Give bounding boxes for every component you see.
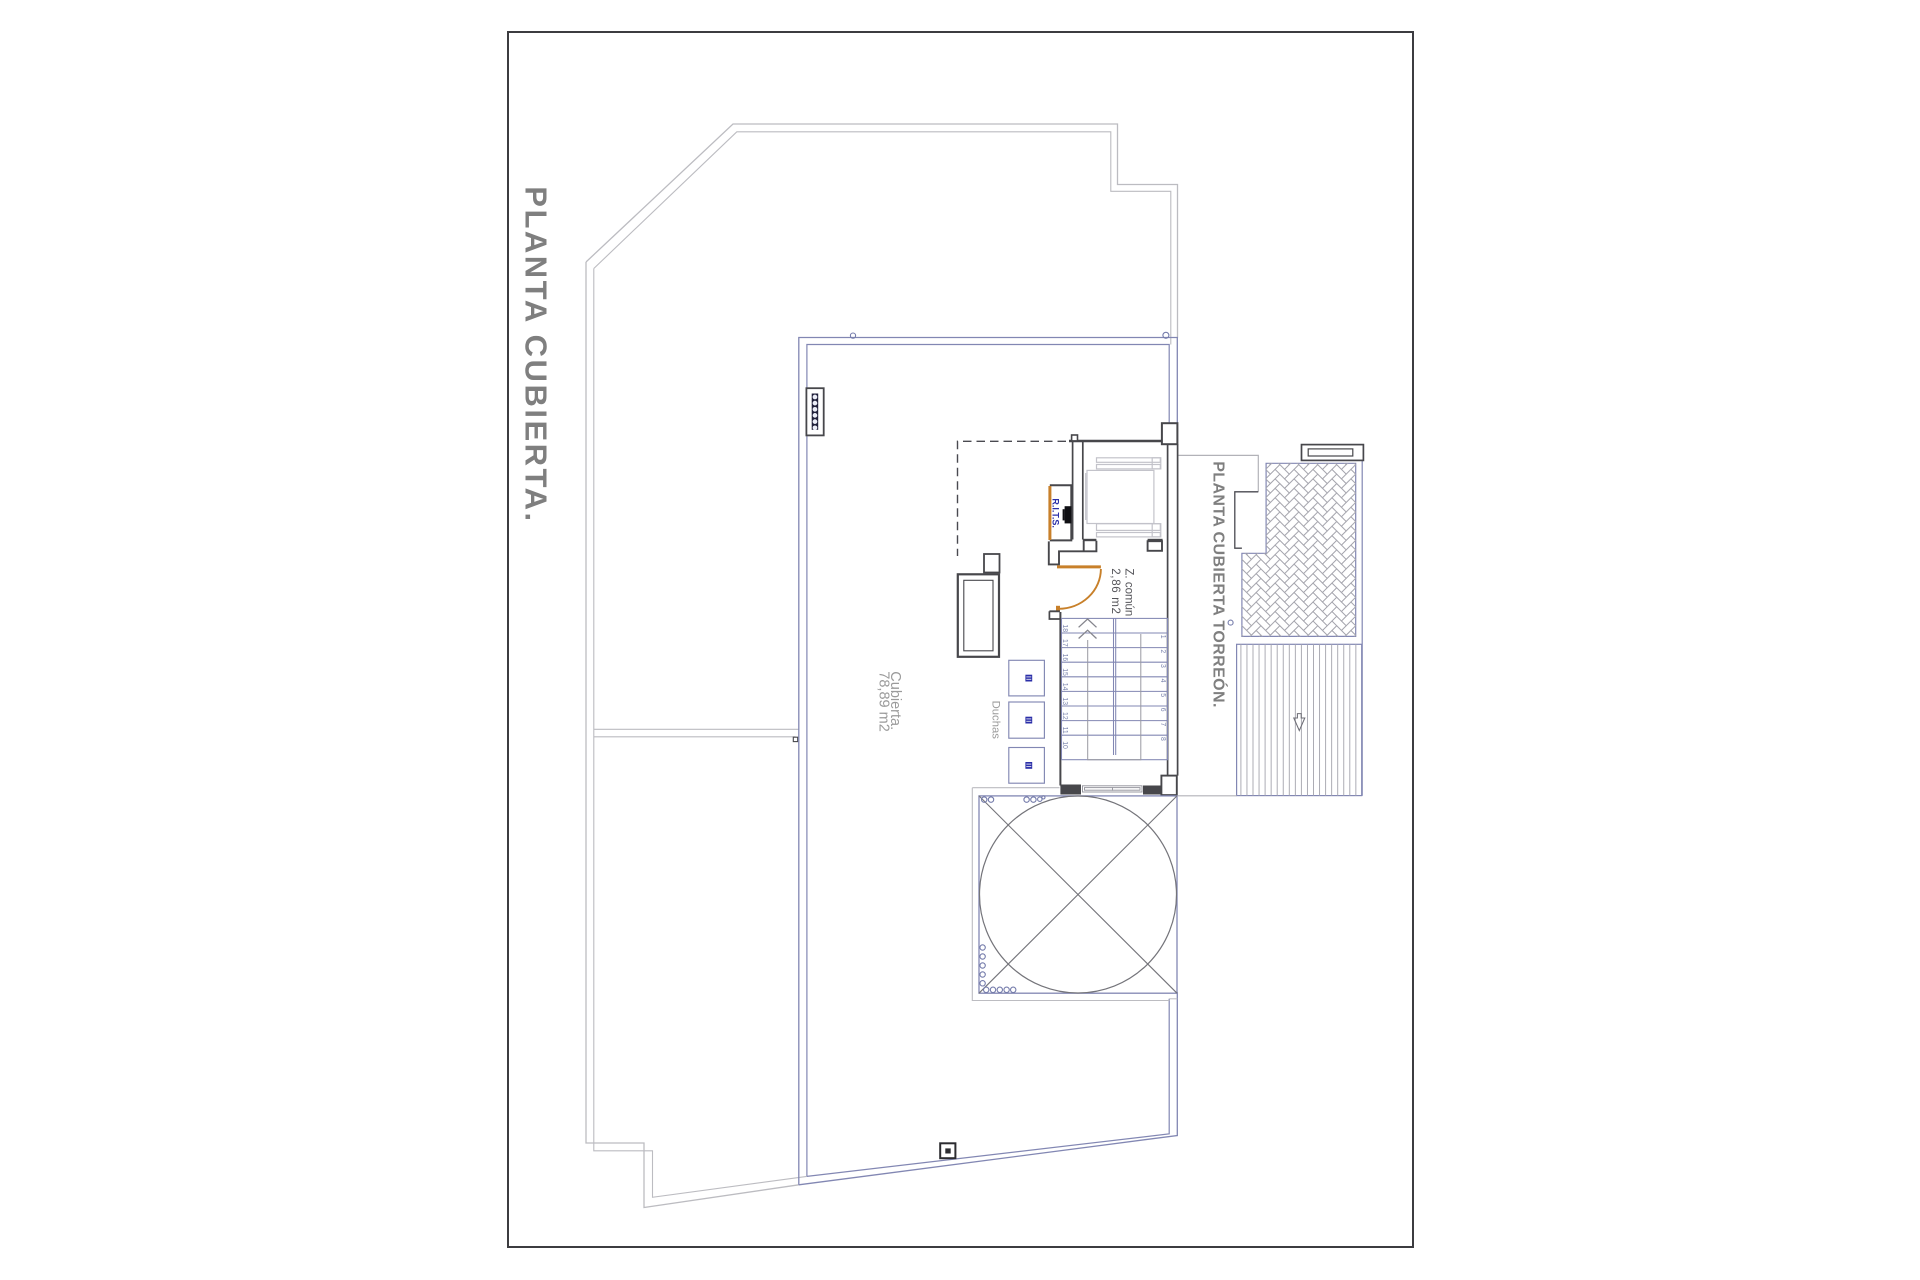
svg-text:15: 15 <box>1061 668 1068 676</box>
svg-text:14: 14 <box>1061 683 1068 691</box>
svg-text:Duchas: Duchas <box>989 701 1001 740</box>
svg-text:6: 6 <box>1159 708 1166 712</box>
svg-text:Z. común: Z. común <box>1123 568 1135 616</box>
svg-text:16: 16 <box>1061 654 1068 662</box>
svg-text:2,86 m2: 2,86 m2 <box>1109 568 1121 614</box>
svg-text:78,89 m2: 78,89 m2 <box>875 671 891 731</box>
svg-text:3: 3 <box>1159 664 1166 668</box>
svg-text:5: 5 <box>1159 693 1166 697</box>
svg-text:8: 8 <box>1159 737 1166 741</box>
svg-text:13: 13 <box>1061 697 1068 705</box>
svg-text:PLANTA CUBIERTA TORREÓN.: PLANTA CUBIERTA TORREÓN. <box>1209 461 1228 708</box>
svg-text:1: 1 <box>1159 635 1166 639</box>
svg-text:10: 10 <box>1061 741 1068 749</box>
svg-text:PLANTA CUBIERTA.: PLANTA CUBIERTA. <box>519 186 554 523</box>
svg-text:18: 18 <box>1061 624 1068 632</box>
svg-text:11: 11 <box>1061 727 1068 734</box>
svg-text:7: 7 <box>1159 722 1166 726</box>
svg-text:4: 4 <box>1159 679 1166 683</box>
svg-text:12: 12 <box>1061 712 1068 720</box>
svg-text:R.I.T.S.: R.I.T.S. <box>1051 498 1061 528</box>
svg-text:17: 17 <box>1061 639 1068 647</box>
svg-text:2: 2 <box>1159 649 1166 653</box>
